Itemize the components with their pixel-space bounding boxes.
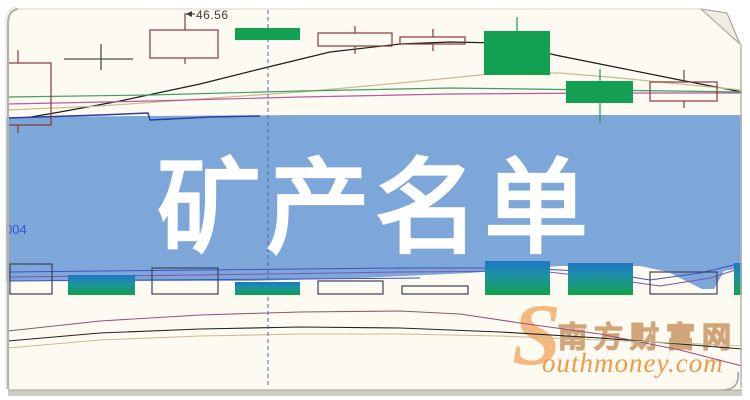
banner-title: 矿产名单	[0, 115, 750, 282]
stock-chart-screenshot: S 南方财富网 outhmoney.com 46.56 004 矿产名单	[0, 0, 750, 400]
price-callout-label: 46.56	[196, 8, 229, 22]
watermark-english-text: outhmoney.com	[542, 348, 724, 379]
watermark: S 南方财富网 outhmoney.com	[512, 298, 750, 393]
